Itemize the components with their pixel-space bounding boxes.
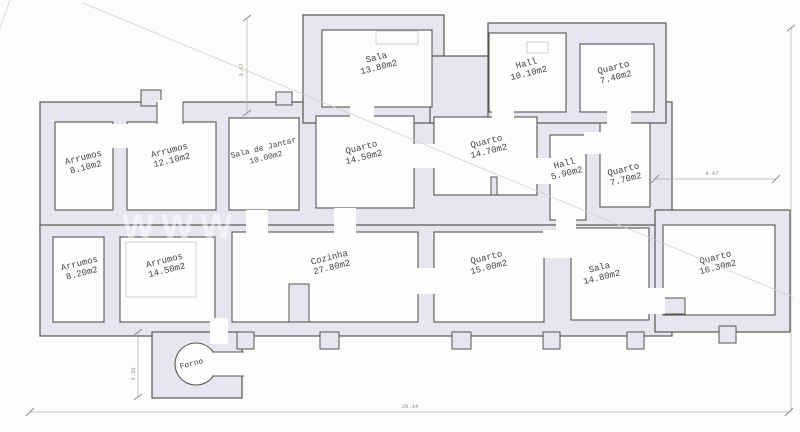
dim-label-bottom: 29.14 [402,403,419,410]
door-opening [210,318,228,344]
dim-label-right: 4.67 [705,170,718,177]
door-opening [648,288,665,314]
dim-label-forno: 3.35 [130,367,137,380]
door-opening [492,109,514,127]
wall-stub [663,298,685,314]
floor-plan-scan: 3.67 4.67 3.35 29.14 Sala13.80m2 Hall10.… [0,0,800,432]
oven-mouth [212,352,244,376]
door-opening [416,268,436,294]
door-opening [350,103,374,123]
room-quarto-15-00 [434,232,544,322]
door-opening [543,230,573,258]
watermark: WWW [122,208,239,246]
wall-stub [491,177,497,195]
door-opening [157,100,183,124]
chimney-tab [276,92,292,105]
room-cozinha [232,232,418,322]
buttress-tab [719,326,736,343]
wall-top-block-connector [430,56,490,123]
room-sala-de-jantar [229,118,299,210]
door-opening [556,214,576,232]
door-opening [246,210,268,238]
buttress-tab [452,332,471,349]
door-opening [584,132,602,154]
room-arrumos-14-50 [120,237,215,322]
buttress-tab [320,332,339,349]
buttress-tab [543,332,560,349]
door-opening [108,124,130,148]
door-opening [607,109,631,127]
buttress-tab [237,332,254,349]
door-opening [334,208,356,235]
floor-plan-svg: 3.67 4.67 3.35 29.14 Sala13.80m2 Hall10.… [0,0,800,432]
buttress-tab [627,332,644,349]
hearth-stub [289,284,309,322]
